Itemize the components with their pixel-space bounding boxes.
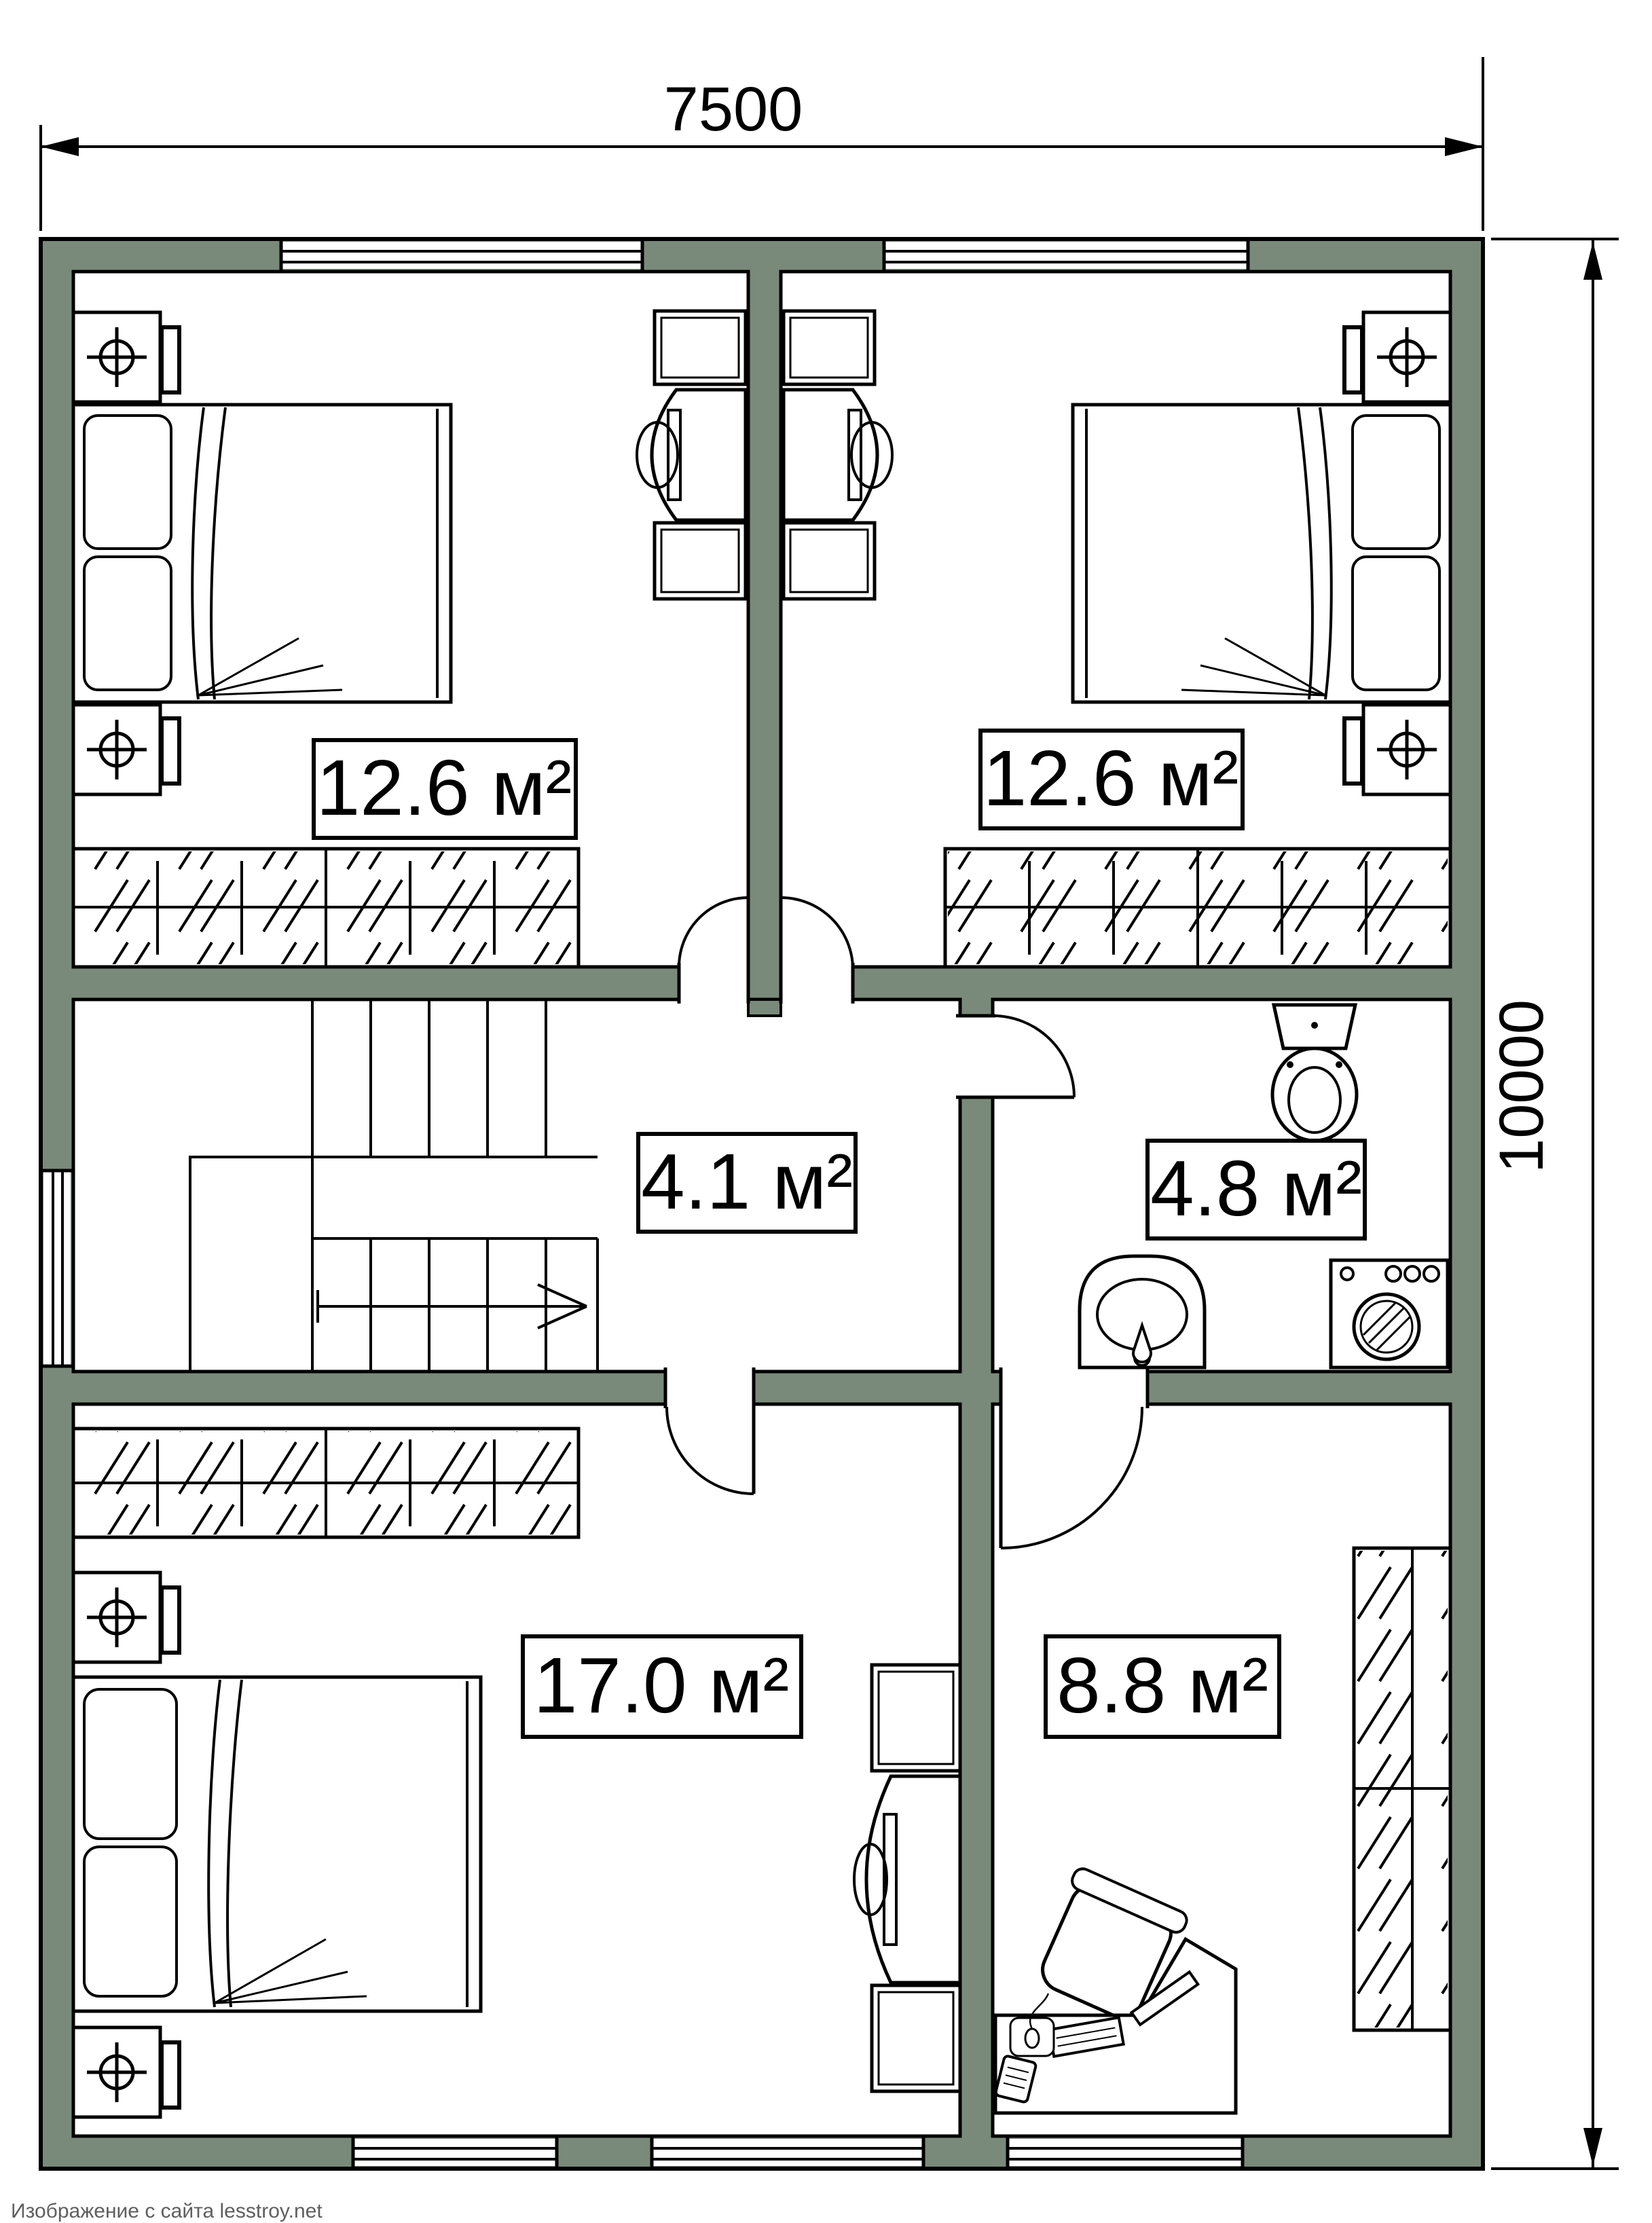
cabinet	[655, 311, 746, 384]
window-top-left	[281, 239, 642, 272]
dim-arrow-down	[1583, 2128, 1602, 2166]
headboard-bracket	[162, 2042, 179, 2108]
double-bed	[73, 405, 451, 702]
dimension-height: 10000	[1487, 239, 1619, 2169]
watermark-text: Изображение с сайта lesstroy.net	[11, 2200, 323, 2222]
headboard-bracket	[162, 327, 179, 392]
window-bottom-2	[652, 2136, 923, 2169]
cabinet	[784, 311, 875, 384]
headboard-bracket	[1344, 718, 1362, 784]
area-label-bedroom-bottom-left: 17.0 м²	[523, 1636, 801, 1737]
area-value: 4.1 м²	[641, 1137, 853, 1226]
double-bed	[73, 1677, 481, 2011]
double-bed	[1073, 405, 1450, 702]
window-bottom-3	[1008, 2136, 1243, 2169]
cabinet	[655, 523, 746, 599]
headboard-bracket	[162, 1587, 179, 1653]
cabinet	[784, 523, 875, 599]
pillow	[1353, 557, 1439, 690]
area-label-bedroom-top-left: 12.6 м²	[314, 740, 576, 838]
area-label-office: 8.8 м²	[1046, 1636, 1279, 1737]
sliding-wardrobe	[945, 849, 1450, 967]
nightstand	[73, 1573, 179, 1662]
area-value: 12.6 м²	[316, 743, 572, 832]
nightstand	[1344, 705, 1450, 794]
floor-plan-page: 7500 10000	[0, 0, 1652, 2223]
area-value: 8.8 м²	[1057, 1641, 1268, 1729]
area-value: 12.6 м²	[983, 734, 1238, 822]
headboard-bracket	[162, 718, 179, 784]
dimension-width: 7500	[41, 57, 1483, 231]
area-label-hall: 4.1 м²	[638, 1134, 856, 1232]
dim-width-text: 7500	[664, 75, 803, 144]
nightstand	[73, 2027, 179, 2117]
nightstand	[1344, 312, 1450, 402]
window-bottom-1	[353, 2136, 557, 2169]
dim-arrow-up	[1583, 242, 1602, 280]
sliding-wardrobe	[73, 1429, 579, 1537]
dim-arrow-left	[41, 137, 79, 156]
pillow	[84, 1689, 177, 1839]
area-value: 4.8 м²	[1150, 1144, 1362, 1232]
sink	[1080, 1256, 1205, 1367]
pillow	[84, 1847, 177, 1996]
area-label-bedroom-top-right: 12.6 м²	[980, 731, 1243, 828]
washing-machine	[1331, 1260, 1448, 1367]
headboard-bracket	[1344, 327, 1362, 392]
floor-plan-drawing: 7500 10000	[0, 0, 1652, 2223]
window-left-stairs	[41, 1171, 73, 1366]
area-label-bathroom: 4.8 м²	[1148, 1141, 1365, 1238]
wardrobe	[1354, 1548, 1450, 2030]
area-value: 17.0 м²	[534, 1641, 789, 1729]
sliding-wardrobe	[73, 849, 579, 967]
dim-arrow-right	[1445, 137, 1483, 156]
central-wall-stub	[748, 999, 781, 1016]
nightstand	[73, 312, 179, 402]
nightstand	[73, 705, 179, 794]
pillow	[1353, 416, 1439, 549]
pillow	[84, 557, 171, 690]
cabinet	[872, 1985, 960, 2091]
window-top-right	[884, 239, 1248, 272]
toilet	[1272, 1005, 1357, 1141]
mouse	[1025, 2029, 1039, 2048]
dim-height-text: 10000	[1487, 999, 1556, 1173]
pillow	[84, 416, 171, 549]
cabinet	[872, 1665, 960, 1771]
